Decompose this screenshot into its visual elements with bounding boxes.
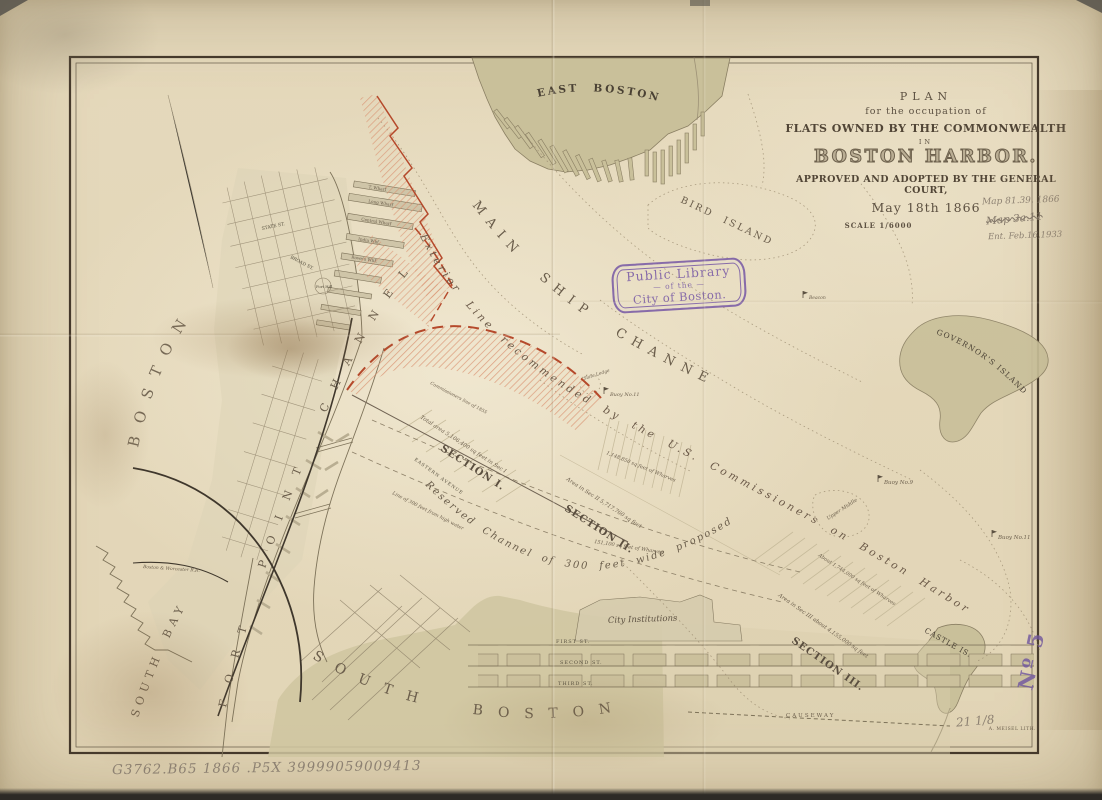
fort-hill-label: Fort Hill <box>316 284 333 289</box>
lithographer-imprint: A. MEISEL LITH. <box>984 727 1036 732</box>
boston-label: BOSTON <box>124 305 197 449</box>
map-sheet: MAIN SHIP CHANNEL FORT POINT CHANNEL BOS… <box>0 0 1102 800</box>
street-second-label: SECOND ST. <box>560 660 603 666</box>
street-third-label: THIRD ST. <box>558 681 594 687</box>
bird-island-label: BIRD ISLAND <box>679 195 775 248</box>
buoy11-east-label: Buoy No.11 <box>997 535 1031 541</box>
title-occupation: for the occupation of <box>780 106 1072 117</box>
title-block: PLAN for the occupation of FLATS OWNED B… <box>780 90 1072 230</box>
beacon-label: Beacon <box>808 295 826 301</box>
area-note-sec2: Area in Sec II 5,717,760 sq feet <box>564 476 643 530</box>
upper-middle-label: Upper Middle <box>826 497 859 521</box>
buoy11-mid-label: Buoy No.11 <box>609 392 640 398</box>
title-plan: PLAN <box>780 90 1072 103</box>
area-note-wharves2: 1,148,850 sq feet of Wharves <box>605 450 677 484</box>
street-first-label: FIRST ST. <box>556 639 590 645</box>
commissioners-1855-label: Commissioners line of 1855 <box>429 380 488 415</box>
central-wharf-label: Central Wharf <box>361 217 392 227</box>
title-in: IN <box>780 138 1072 146</box>
sheet-bottom-edge <box>0 788 1102 800</box>
edge-notch-top <box>690 0 710 6</box>
title-flats: FLATS OWNED BY THE COMMONWEALTH <box>780 122 1072 135</box>
east-boston-landmass <box>472 58 730 184</box>
buoy9-label: Buoy No.9 <box>883 480 914 486</box>
reserved-channel-label: Reserved Channel of 300 feet wide propos… <box>422 479 735 572</box>
title-approved: APPROVED AND ADOPTED BY THE GENERAL COUR… <box>780 174 1072 196</box>
governors-island-landmass <box>900 316 1049 442</box>
title-scale: SCALE 1/6000 <box>780 221 977 230</box>
title-boston-harbor: BOSTON HARBOR. <box>780 147 1072 167</box>
library-stamp: Public Library — of the — City of Boston… <box>611 257 748 314</box>
causeway-label: CAUSEWAY <box>786 713 835 719</box>
